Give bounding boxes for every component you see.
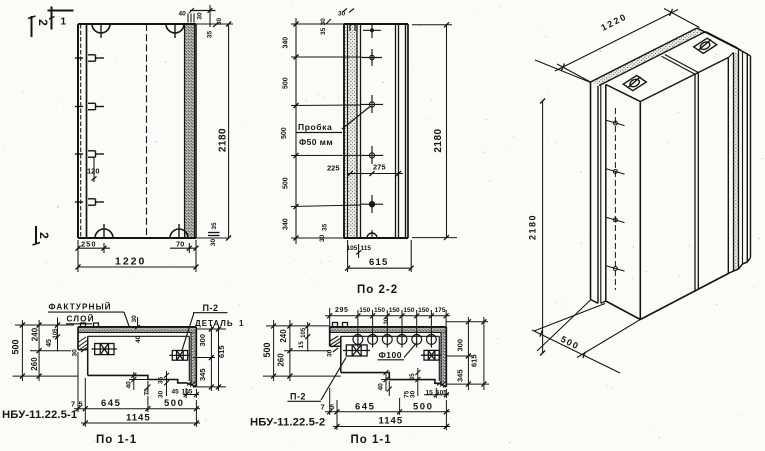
svg-text:260: 260: [30, 357, 39, 371]
svg-text:ФАКТУРНЫЙ: ФАКТУРНЫЙ: [49, 301, 112, 312]
svg-text:115: 115: [361, 245, 372, 252]
svg-text:45: 45: [46, 339, 53, 347]
svg-text:645: 645: [355, 402, 375, 413]
svg-text:35: 35: [409, 373, 416, 381]
svg-text:260: 260: [276, 353, 285, 367]
svg-text:5: 5: [79, 400, 83, 409]
svg-text:НБУ-11.22.5-2: НБУ-11.22.5-2: [250, 417, 325, 429]
svg-text:1: 1: [61, 17, 67, 28]
svg-text:500: 500: [11, 339, 21, 354]
svg-text:35: 35: [158, 376, 165, 384]
svg-text:По 2-2: По 2-2: [357, 284, 398, 296]
svg-text:2180: 2180: [433, 128, 444, 152]
svg-text:275: 275: [373, 163, 386, 172]
svg-text:30: 30: [320, 18, 327, 26]
svg-text:75: 75: [144, 388, 151, 396]
svg-text:225: 225: [327, 164, 340, 173]
svg-text:30: 30: [319, 234, 326, 242]
svg-text:По 1-1: По 1-1: [351, 434, 392, 446]
svg-text:ДЕТАЛЬ: ДЕТАЛЬ: [195, 319, 234, 328]
svg-text:150: 150: [359, 307, 370, 314]
svg-text:Ф100: Ф100: [379, 350, 402, 360]
svg-text:340: 340: [283, 218, 290, 230]
svg-text:30: 30: [210, 239, 217, 247]
svg-text:500: 500: [283, 77, 290, 89]
svg-text:1145: 1145: [126, 413, 151, 424]
svg-text:30: 30: [384, 317, 390, 324]
svg-text:500: 500: [281, 127, 288, 139]
svg-text:НБУ-11.22.5-1: НБУ-11.22.5-1: [2, 409, 77, 421]
svg-text:35: 35: [207, 31, 214, 39]
svg-text:Пробка: Пробка: [298, 122, 332, 132]
svg-text:240: 240: [30, 327, 39, 341]
svg-text:150: 150: [403, 307, 414, 314]
svg-text:105: 105: [347, 245, 358, 252]
svg-text:35: 35: [322, 223, 329, 231]
svg-text:500: 500: [413, 402, 433, 413]
svg-text:35: 35: [320, 27, 327, 35]
svg-text:300: 300: [456, 339, 465, 352]
svg-text:345: 345: [456, 369, 465, 382]
svg-text:500: 500: [164, 398, 184, 409]
svg-text:15: 15: [426, 390, 434, 397]
svg-text:615: 615: [369, 257, 388, 268]
svg-text:300: 300: [198, 334, 207, 347]
svg-text:П-2: П-2: [290, 392, 306, 402]
svg-text:40: 40: [179, 11, 187, 18]
svg-text:2180: 2180: [217, 128, 228, 152]
svg-text:30: 30: [158, 390, 165, 398]
svg-text:1220: 1220: [599, 11, 629, 33]
svg-text:2180: 2180: [528, 214, 538, 240]
svg-text:5: 5: [330, 403, 334, 412]
svg-text:2: 2: [37, 232, 51, 239]
svg-text:105: 105: [301, 327, 307, 338]
svg-text:15: 15: [298, 341, 305, 349]
svg-text:30: 30: [410, 390, 417, 398]
svg-text:150: 150: [389, 307, 400, 314]
svg-text:150: 150: [374, 307, 385, 314]
svg-text:105: 105: [53, 328, 59, 339]
svg-text:30: 30: [197, 12, 204, 20]
svg-text:645: 645: [101, 398, 121, 409]
svg-text:По 1-1: По 1-1: [96, 434, 137, 446]
svg-text:70: 70: [176, 240, 184, 249]
svg-text:7: 7: [321, 403, 325, 412]
svg-text:1220: 1220: [115, 256, 146, 268]
svg-text:П-2: П-2: [203, 303, 219, 313]
svg-text:120: 120: [87, 167, 100, 176]
svg-text:500: 500: [283, 177, 290, 189]
svg-text:30: 30: [338, 11, 346, 18]
svg-text:40: 40: [378, 383, 385, 391]
svg-text:150: 150: [418, 307, 429, 314]
svg-text:35: 35: [211, 222, 218, 230]
svg-text:615: 615: [217, 345, 226, 358]
svg-text:30: 30: [72, 349, 79, 357]
svg-text:240: 240: [279, 329, 288, 343]
svg-text:40: 40: [135, 335, 142, 343]
svg-text:СЛОЙ: СЛОЙ: [67, 313, 95, 324]
svg-text:30: 30: [327, 349, 334, 357]
svg-text:7: 7: [71, 400, 75, 409]
svg-text:345: 345: [198, 368, 207, 381]
svg-text:500: 500: [262, 342, 272, 357]
svg-text:175: 175: [435, 307, 446, 314]
svg-text:2: 2: [36, 19, 50, 26]
svg-text:1145: 1145: [379, 416, 404, 427]
svg-text:30: 30: [131, 315, 138, 323]
svg-text:340: 340: [283, 37, 290, 49]
svg-text:295: 295: [335, 307, 348, 314]
svg-text:1: 1: [239, 319, 244, 328]
svg-text:45: 45: [172, 389, 180, 396]
svg-text:Ф50 мм: Ф50 мм: [299, 137, 333, 147]
svg-text:250: 250: [81, 240, 97, 249]
svg-text:615: 615: [470, 354, 479, 367]
